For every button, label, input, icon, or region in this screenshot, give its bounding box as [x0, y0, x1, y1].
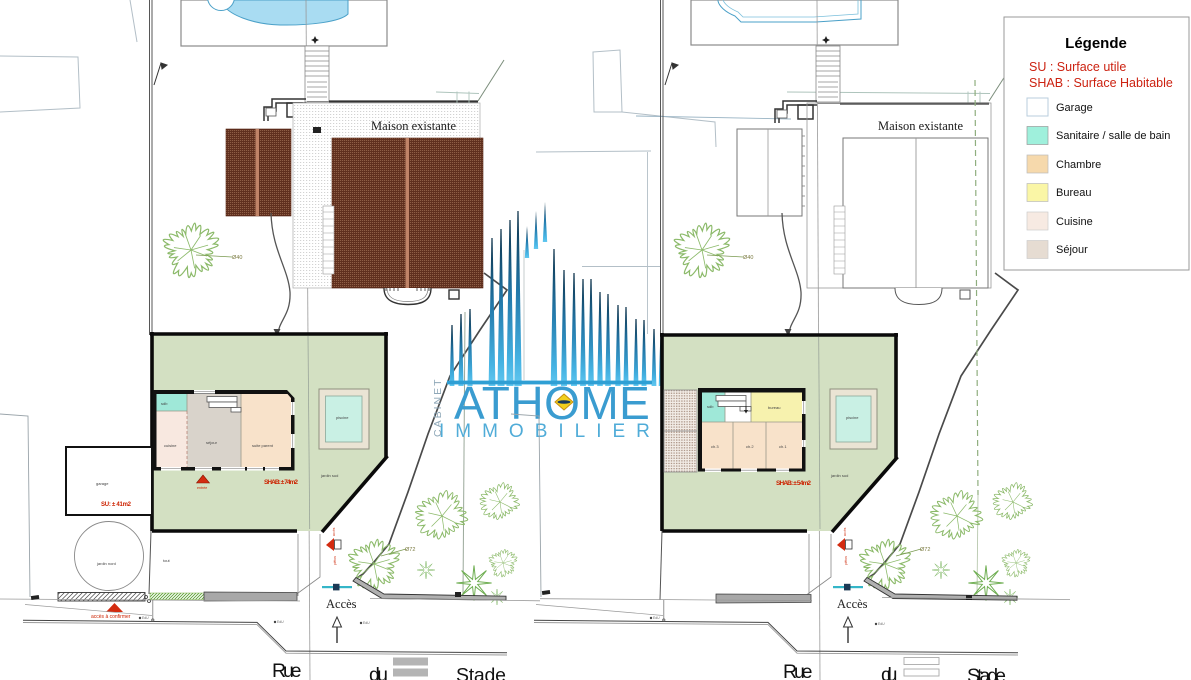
- svg-text:sdb: sdb: [707, 404, 714, 409]
- svg-text:tout: tout: [163, 558, 171, 563]
- svg-text:Rue: Rue: [783, 661, 813, 680]
- svg-text:jardin nord: jardin nord: [96, 561, 116, 566]
- svg-text:Maison existante: Maison existante: [878, 119, 964, 133]
- svg-text:du: du: [369, 664, 388, 680]
- svg-text:Accès: Accès: [837, 597, 868, 611]
- svg-text:Légende: Légende: [1065, 35, 1127, 52]
- svg-text:SU : Surface utile: SU : Surface utile: [1029, 60, 1126, 74]
- svg-text:Ø72: Ø72: [405, 547, 415, 553]
- svg-text:SHAB: ± 54m2: SHAB: ± 54m2: [776, 480, 811, 487]
- svg-text:SHAB : Surface Habitable: SHAB : Surface Habitable: [1029, 76, 1173, 90]
- svg-text:bureau: bureau: [768, 405, 780, 410]
- svg-text:cuisine: cuisine: [164, 443, 177, 448]
- svg-text:accès: accès: [332, 527, 336, 536]
- svg-text:Séjour: Séjour: [1056, 244, 1088, 256]
- svg-text:piscine: piscine: [336, 415, 349, 420]
- svg-text:Sanitaire / salle de bain: Sanitaire / salle de bain: [1056, 130, 1170, 142]
- svg-text:Stade: Stade: [456, 665, 506, 680]
- svg-text:entrée: entrée: [197, 486, 207, 490]
- svg-text:ch.2: ch.2: [746, 444, 754, 449]
- svg-text:Maison existante: Maison existante: [371, 119, 457, 133]
- svg-text:CABINET: CABINET: [432, 377, 444, 437]
- svg-text:garage: garage: [96, 481, 109, 486]
- svg-text:sdb: sdb: [161, 401, 168, 406]
- svg-text:Ø72: Ø72: [920, 547, 930, 553]
- svg-text:Rue: Rue: [272, 660, 302, 680]
- svg-text:Bureau: Bureau: [1056, 187, 1091, 199]
- svg-text:jardin sud: jardin sud: [320, 473, 338, 478]
- svg-text:Ø40: Ø40: [232, 255, 242, 261]
- svg-text:du: du: [881, 664, 898, 680]
- svg-text:IMMOBILIER: IMMOBILIER: [439, 421, 661, 442]
- svg-text:Cuisine: Cuisine: [1056, 216, 1093, 228]
- svg-text:accès: accès: [843, 527, 847, 536]
- svg-text:séjour: séjour: [206, 440, 218, 445]
- svg-text:SU: ± 41m2: SU: ± 41m2: [101, 502, 132, 508]
- svg-text:piéton: piéton: [844, 556, 848, 565]
- svg-text:accès à confirmer: accès à confirmer: [91, 614, 131, 620]
- svg-text:SHAB: ± 74m2: SHAB: ± 74m2: [264, 479, 298, 486]
- svg-text:Garage: Garage: [1056, 102, 1093, 114]
- svg-text:suite parent: suite parent: [252, 443, 274, 448]
- svg-text:Accès: Accès: [326, 597, 357, 611]
- svg-text:ch.3: ch.3: [711, 444, 719, 449]
- svg-text:ch.1: ch.1: [779, 444, 787, 449]
- svg-text:Chambre: Chambre: [1056, 159, 1101, 171]
- svg-text:piéton: piéton: [333, 556, 337, 565]
- svg-text:jardin sud: jardin sud: [830, 473, 848, 478]
- svg-text:Stade: Stade: [967, 665, 1006, 680]
- svg-text:Ø40: Ø40: [743, 255, 753, 261]
- svg-text:piscine: piscine: [846, 415, 859, 420]
